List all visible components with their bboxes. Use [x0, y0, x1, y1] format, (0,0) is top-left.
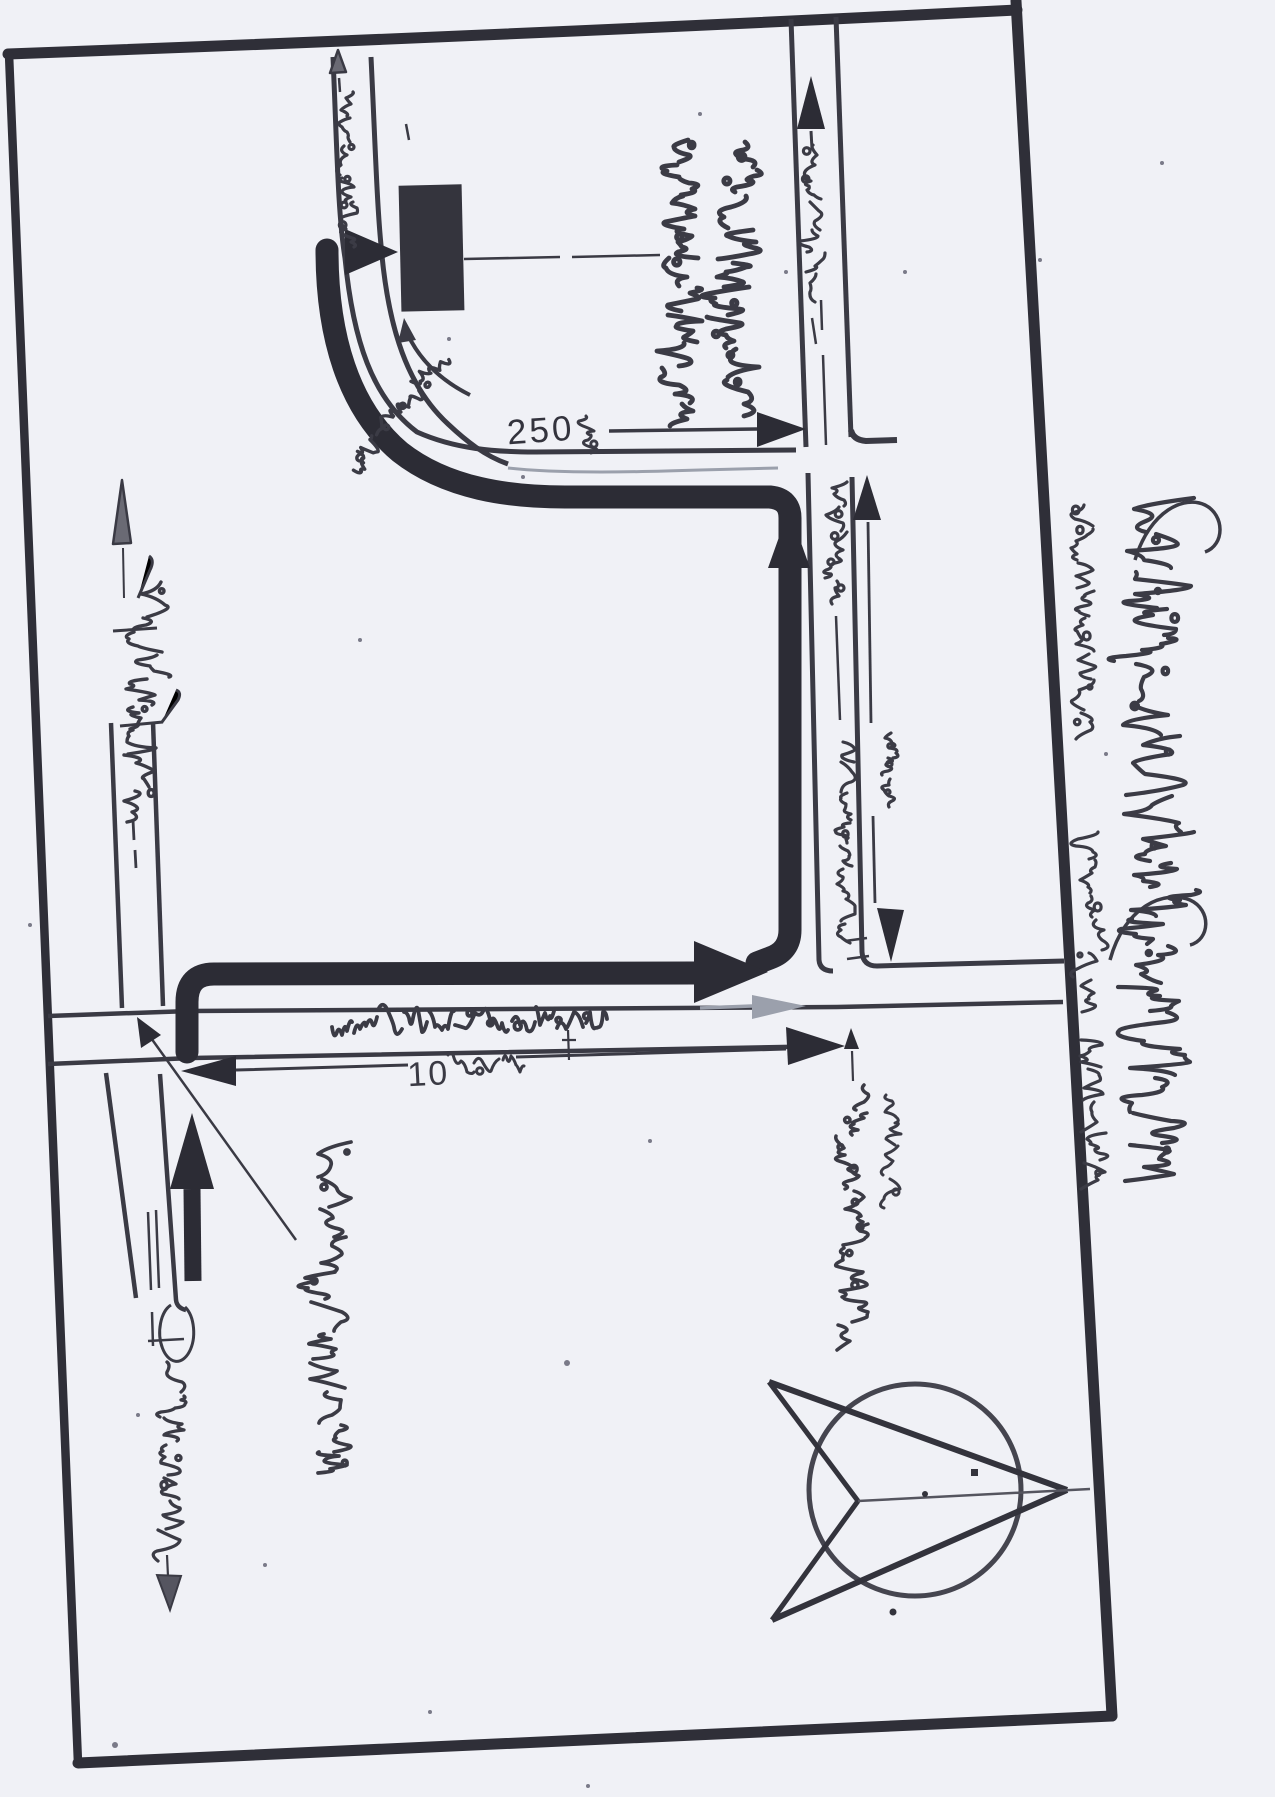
svg-text:10: 10	[406, 1054, 450, 1094]
svg-text:250: 250	[506, 409, 576, 453]
